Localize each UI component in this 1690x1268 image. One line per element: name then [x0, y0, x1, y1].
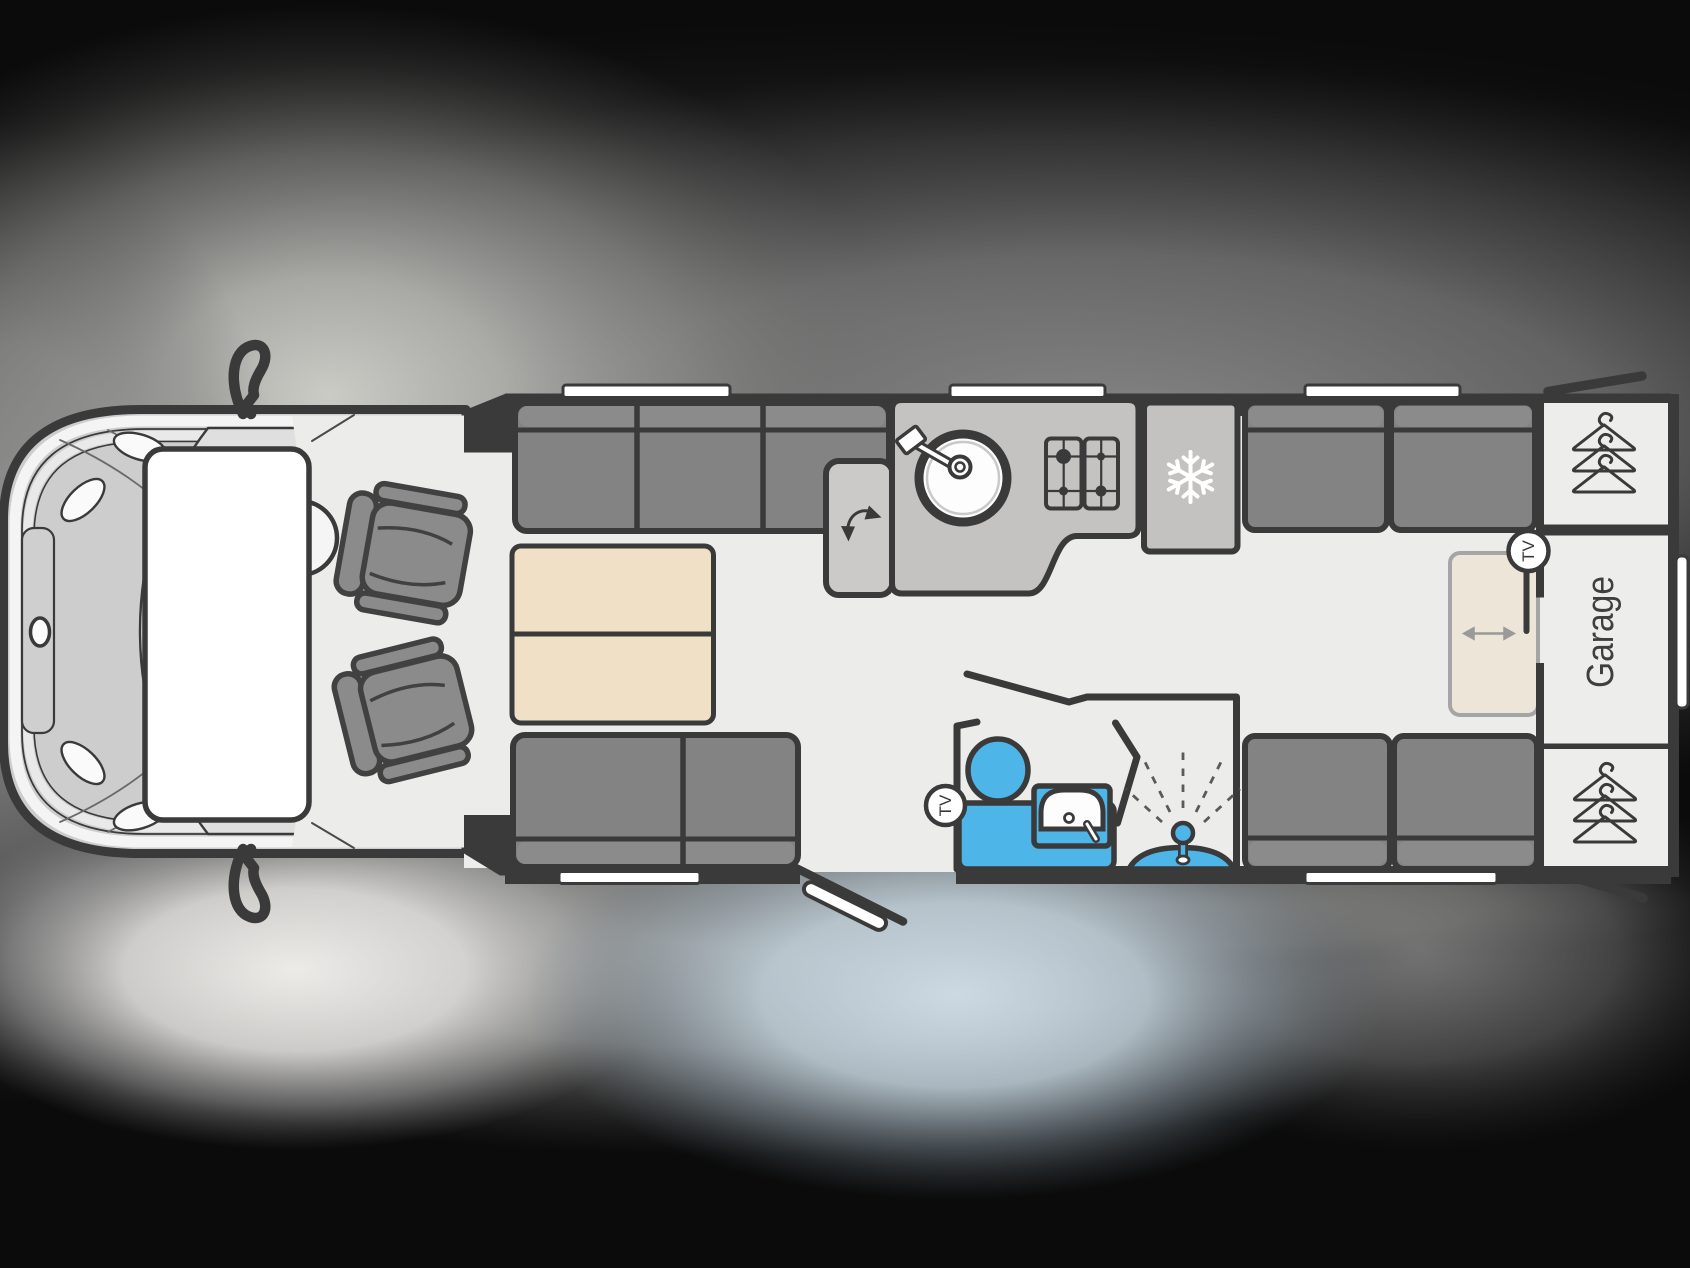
- svg-text:Garage: Garage: [1580, 576, 1622, 688]
- svg-text:TV: TV: [1519, 539, 1538, 561]
- svg-text:TV: TV: [936, 794, 955, 816]
